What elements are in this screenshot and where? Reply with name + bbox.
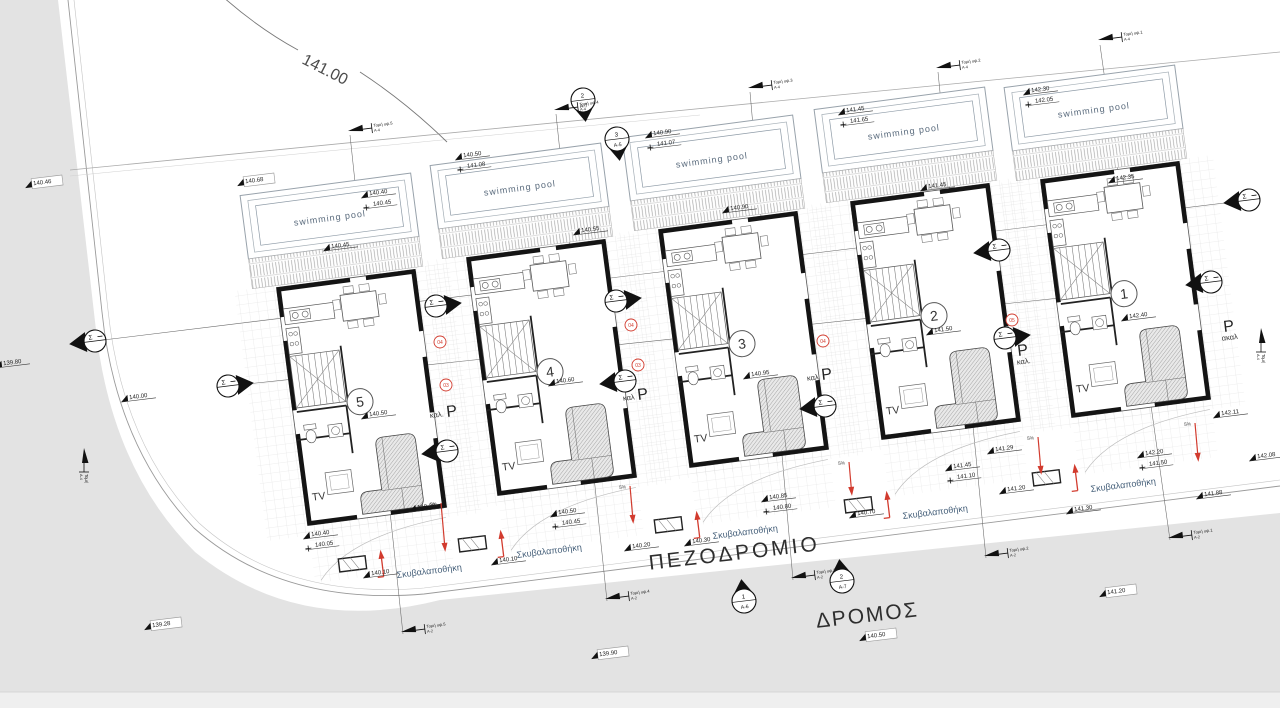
chair xyxy=(907,213,915,224)
chair xyxy=(729,262,740,270)
marker-sheet: Α-7 xyxy=(839,584,848,591)
garbage-arrow-foot xyxy=(378,577,384,578)
garbage-arrow-foot xyxy=(1072,491,1078,492)
tv-label: TV xyxy=(311,490,326,504)
chair xyxy=(568,263,576,274)
staircase xyxy=(864,264,920,322)
section-sigma: Σ xyxy=(992,243,997,250)
chair xyxy=(760,235,768,246)
red-ref-number: 03 xyxy=(443,383,449,389)
slope-percent: 5% xyxy=(619,484,627,491)
chair xyxy=(1111,212,1122,220)
tv-label: TV xyxy=(693,432,708,446)
red-ref-number: 05 xyxy=(1009,318,1015,324)
survey-sheet: Α-4 xyxy=(374,128,380,133)
chair xyxy=(1097,191,1105,202)
chair xyxy=(937,232,948,240)
garbage-shed xyxy=(458,536,486,552)
chair xyxy=(537,290,548,298)
chair xyxy=(741,226,752,234)
survey-sheet: Α-4 xyxy=(79,474,83,480)
coffee-table xyxy=(325,469,354,494)
survey-sheet: Α-4 xyxy=(962,65,968,70)
coffee-table xyxy=(899,383,928,408)
chair xyxy=(523,269,531,280)
vanity xyxy=(1092,315,1108,330)
slope-percent: 5% xyxy=(1027,435,1035,442)
staircase xyxy=(290,350,346,408)
red-reference-tag: 04 xyxy=(817,335,829,347)
slope-percent: 5% xyxy=(1184,421,1192,428)
chair xyxy=(745,260,756,268)
survey-sheet: Α-4 xyxy=(1124,37,1130,42)
section-sigma: Σ xyxy=(221,379,226,386)
parking-type: καλ. xyxy=(429,409,444,420)
vanity xyxy=(902,337,918,352)
chair xyxy=(347,320,358,328)
garbage-shed xyxy=(1032,470,1060,486)
tv-label: TV xyxy=(1075,382,1090,396)
staircase xyxy=(480,320,536,378)
coffee-table xyxy=(707,411,736,436)
vanity xyxy=(328,423,344,438)
chair xyxy=(917,200,928,208)
site-plan-page: 141.00swimming pool5TVswimming pool4TVsw… xyxy=(0,0,1280,708)
dining-table xyxy=(722,233,761,263)
parking-type: καλ. xyxy=(1016,356,1031,367)
garbage-shed xyxy=(338,556,366,572)
chair xyxy=(363,318,374,326)
red-reference-tag: 03 xyxy=(440,379,452,391)
chair xyxy=(378,293,386,304)
dining-table xyxy=(340,291,379,321)
survey-sheet: Α-4 xyxy=(1256,354,1260,360)
coffee-table xyxy=(515,439,544,464)
section-sigma: Σ xyxy=(818,399,823,406)
section-sigma: Σ xyxy=(440,444,445,451)
survey-sheet: Α-2 xyxy=(631,596,637,601)
red-ref-number: 04 xyxy=(437,340,443,346)
staircase xyxy=(672,292,728,350)
chair xyxy=(533,256,544,264)
dining-table xyxy=(1104,183,1143,213)
section-sigma: Σ xyxy=(609,294,614,301)
red-ref-number: 04 xyxy=(628,323,634,329)
marker-sheet: Α-5 xyxy=(614,142,623,149)
vanity xyxy=(518,393,534,408)
site-plan-canvas: 141.00swimming pool5TVswimming pool4TVsw… xyxy=(0,0,1280,708)
chair xyxy=(343,286,354,294)
dining-table xyxy=(530,261,569,291)
chair xyxy=(1142,185,1150,196)
marker-sheet: Α-6 xyxy=(741,604,750,611)
chair xyxy=(549,254,560,262)
chair xyxy=(725,228,736,236)
red-reference-tag: 04 xyxy=(625,319,637,331)
parking-letter: P xyxy=(820,366,833,384)
survey-label: Τομή xyxy=(84,474,89,484)
parking-letter: P xyxy=(445,403,458,421)
survey-sheet: Α-2 xyxy=(1010,553,1016,558)
chair xyxy=(1127,210,1138,218)
coffee-table xyxy=(1089,361,1118,386)
survey-label: Τομή xyxy=(1261,354,1266,364)
chair xyxy=(333,299,341,310)
survey-sheet: Α-4 xyxy=(774,85,780,90)
section-sigma: Σ xyxy=(429,299,434,306)
red-reference-tag: 03 xyxy=(632,359,644,371)
tv-label: TV xyxy=(885,404,900,418)
survey-sheet: Α-2 xyxy=(817,575,823,580)
survey-sheet: Α-4 xyxy=(580,107,586,112)
survey-sheet: Α-2 xyxy=(427,629,433,634)
section-sigma: Σ xyxy=(1204,275,1209,282)
parking-type: καλ xyxy=(622,392,635,402)
slope-percent: 5% xyxy=(838,460,846,467)
parking-type: καλ xyxy=(806,372,819,382)
dining-table xyxy=(914,205,953,235)
garbage-shed xyxy=(654,517,682,533)
garbage-arrow-foot xyxy=(884,518,890,519)
tv-label: TV xyxy=(501,460,516,474)
survey-sheet: Α-2 xyxy=(1194,535,1200,540)
red-reference-tag: 05 xyxy=(1006,314,1018,326)
chair xyxy=(921,234,932,242)
road-edge-strip xyxy=(0,692,1280,708)
red-ref-number: 03 xyxy=(635,363,641,369)
chair xyxy=(933,198,944,206)
chair xyxy=(553,288,564,296)
section-sigma: Σ xyxy=(1242,193,1247,200)
section-sigma: Σ xyxy=(88,334,93,341)
parking-letter: P xyxy=(636,386,649,404)
red-ref-number: 04 xyxy=(820,339,826,345)
chair xyxy=(715,241,723,252)
staircase xyxy=(1054,242,1110,300)
section-sigma: Σ xyxy=(618,374,623,381)
section-sigma: Σ xyxy=(998,331,1003,338)
chair xyxy=(952,207,960,218)
red-reference-tag: 04 xyxy=(434,336,446,348)
vanity xyxy=(710,365,726,380)
chair xyxy=(359,284,370,292)
